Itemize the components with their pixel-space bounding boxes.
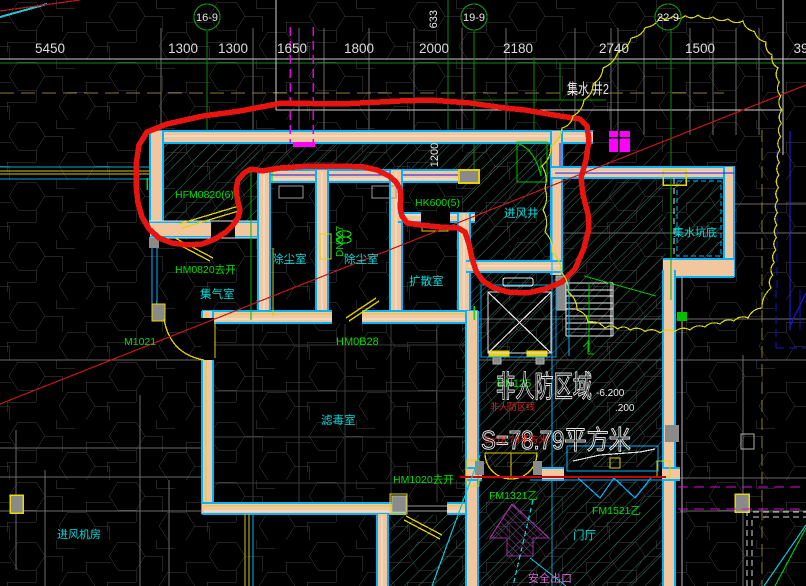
svg-text:扩散室: 扩散室 [409, 274, 444, 288]
svg-text:HM1020去开: HM1020去开 [393, 474, 454, 486]
svg-text:FM1521乙: FM1521乙 [592, 505, 641, 517]
svg-text:16-9: 16-9 [196, 12, 218, 24]
svg-text:39: 39 [793, 41, 806, 56]
svg-text:除尘室: 除尘室 [344, 252, 379, 266]
svg-text:安全出口: 安全出口 [528, 571, 572, 585]
svg-text:2000: 2000 [419, 41, 449, 56]
svg-text:集水 井2: 集水 井2 [567, 81, 609, 98]
svg-text:非人防区域: 非人防区域 [496, 371, 592, 404]
svg-text:22-9: 22-9 [657, 12, 679, 24]
svg-text:M1021: M1021 [124, 336, 156, 348]
svg-text:HK600(5): HK600(5) [415, 197, 460, 209]
svg-text:1650: 1650 [277, 41, 307, 56]
svg-text:滤毒室: 滤毒室 [321, 413, 356, 427]
svg-text:FM1321乙: FM1321乙 [489, 490, 538, 502]
svg-text:非人防区线: 非人防区线 [490, 401, 535, 412]
svg-text:1300: 1300 [168, 41, 198, 56]
svg-text:1200: 1200 [429, 143, 441, 167]
svg-text:.200: .200 [615, 403, 635, 414]
svg-text:2180: 2180 [503, 41, 533, 56]
svg-text:1800: 1800 [344, 41, 374, 56]
svg-text:集水坑底: 集水坑底 [673, 225, 717, 239]
svg-text:633: 633 [428, 10, 440, 28]
svg-text:1300: 1300 [218, 41, 248, 56]
svg-text:进风井: 进风井 [504, 206, 539, 220]
svg-text:1500: 1500 [685, 41, 715, 56]
svg-text:5450: 5450 [35, 41, 65, 56]
svg-text:进风机房: 进风机房 [57, 527, 101, 541]
svg-text:S=78.79平方米: S=78.79平方米 [484, 434, 549, 446]
svg-text:HM0B28: HM0B28 [336, 336, 379, 348]
svg-text:HFM0820(6): HFM0820(6) [175, 189, 234, 201]
svg-text:2740: 2740 [599, 41, 629, 56]
svg-text:19-9: 19-9 [463, 12, 485, 24]
svg-text:除尘室: 除尘室 [272, 252, 307, 266]
svg-text:集气室: 集气室 [200, 287, 235, 301]
svg-text:门厅: 门厅 [573, 528, 596, 542]
svg-text:HM0820去开: HM0820去开 [175, 264, 236, 276]
svg-text:DN527: DN527 [335, 225, 346, 257]
svg-text:-6.200: -6.200 [596, 388, 625, 399]
